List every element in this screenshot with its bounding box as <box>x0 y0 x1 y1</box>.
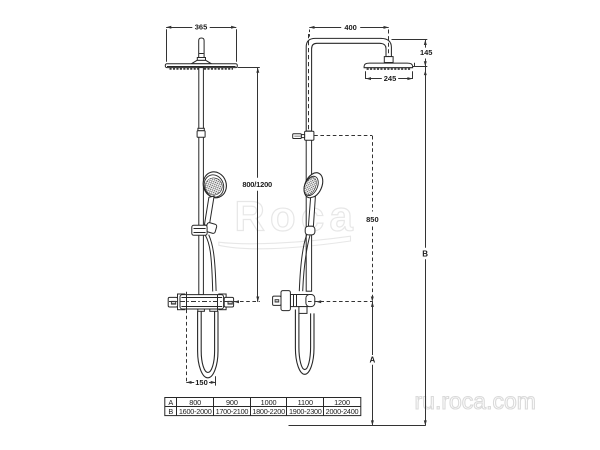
svg-text:365: 365 <box>195 23 208 32</box>
svg-text:1900-2300: 1900-2300 <box>289 407 322 416</box>
svg-text:1700-2100: 1700-2100 <box>216 407 249 416</box>
svg-text:B: B <box>168 407 173 416</box>
svg-text:A: A <box>168 398 173 407</box>
svg-text:2000-2400: 2000-2400 <box>326 407 359 416</box>
svg-text:245: 245 <box>384 74 397 83</box>
svg-text:ru.roca.com: ru.roca.com <box>415 388 536 414</box>
svg-text:1000: 1000 <box>261 398 277 407</box>
svg-text:850: 850 <box>366 215 379 224</box>
svg-text:800: 800 <box>189 398 201 407</box>
svg-text:150: 150 <box>195 378 208 387</box>
svg-text:800/1200: 800/1200 <box>242 180 272 189</box>
svg-text:Roca: Roca <box>235 193 359 240</box>
svg-text:900: 900 <box>226 398 238 407</box>
svg-text:A: A <box>370 356 376 365</box>
svg-text:B: B <box>422 250 428 259</box>
svg-text:145: 145 <box>420 48 433 57</box>
svg-text:1200: 1200 <box>334 398 350 407</box>
svg-text:1800-2200: 1800-2200 <box>252 407 285 416</box>
svg-text:400: 400 <box>344 23 357 32</box>
svg-text:1600-2000: 1600-2000 <box>179 407 212 416</box>
svg-text:1100: 1100 <box>298 398 313 407</box>
